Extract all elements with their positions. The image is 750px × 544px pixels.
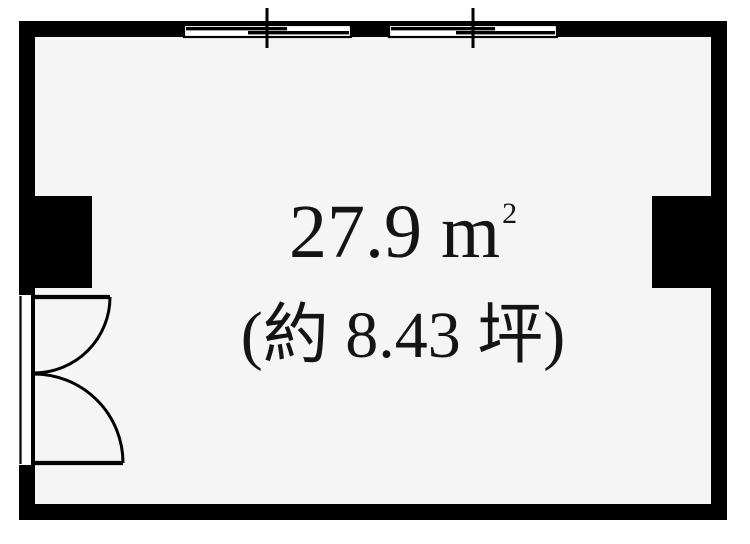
area-tsubo-line: (約 8.43 坪)	[56, 288, 750, 384]
area-label: 27.9 m2 (約 8.43 坪)	[0, 192, 750, 384]
area-sqm-line: 27.9 m2	[56, 192, 750, 288]
area-sqm-superscript: 2	[502, 197, 517, 230]
floor-plan: 27.9 m2 (約 8.43 坪)	[0, 0, 750, 544]
area-sqm-value: 27.9 m	[289, 190, 500, 274]
